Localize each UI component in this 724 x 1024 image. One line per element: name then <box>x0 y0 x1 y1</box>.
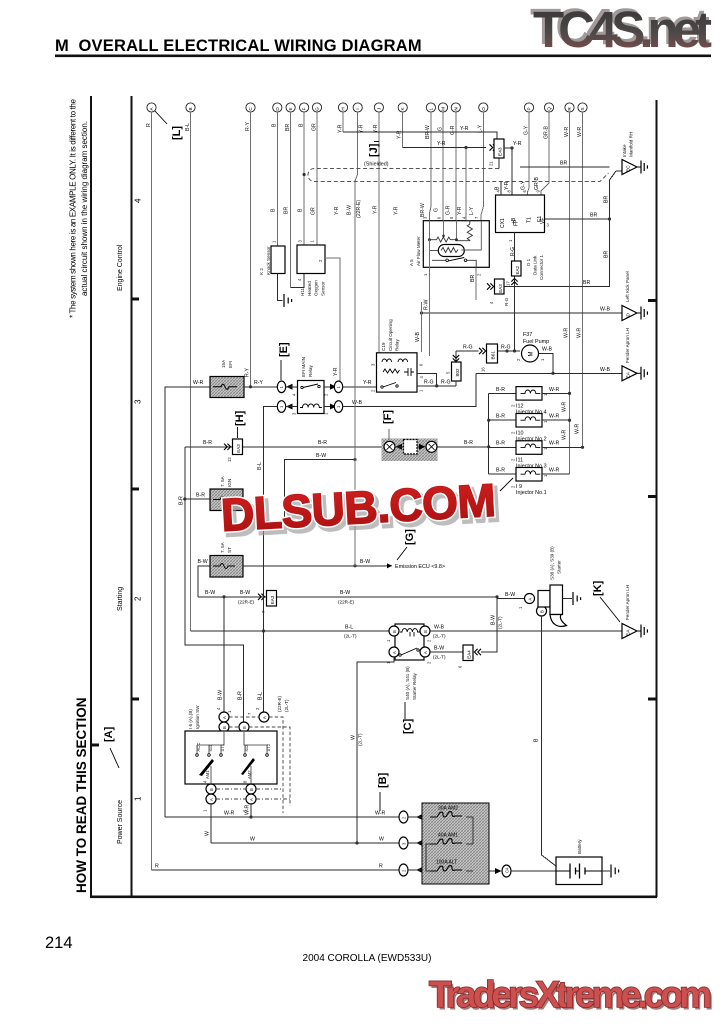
svg-text:Y-R: Y-R <box>460 126 469 132</box>
svg-text:W-R: W-R <box>577 327 583 338</box>
svg-text:B-W: B-W <box>505 592 515 598</box>
svg-text:(22R-E): (22R-E) <box>338 599 355 604</box>
svg-text:B-W: B-W <box>316 453 326 459</box>
svg-text:W-R: W-R <box>549 387 560 393</box>
svg-text:EA3: EA3 <box>498 284 503 293</box>
svg-text:W-R: W-R <box>575 423 581 434</box>
svg-text:21: 21 <box>489 161 494 166</box>
svg-text:Starting: Starting <box>117 587 124 611</box>
svg-text:W-R: W-R <box>562 401 568 412</box>
svg-text:E1: E1 <box>537 216 543 222</box>
svg-text:K 2: K 2 <box>259 268 264 275</box>
svg-text:B-R: B-R <box>496 441 505 447</box>
svg-text:(2L-T): (2L-T) <box>433 634 446 639</box>
svg-text:16: 16 <box>481 367 486 372</box>
svg-text:W-B: W-B <box>600 307 611 313</box>
svg-text:B: B <box>272 123 278 127</box>
svg-text:E43: E43 <box>498 147 504 156</box>
svg-text:EA4: EA4 <box>467 650 472 659</box>
svg-text:W-B: W-B <box>352 400 363 406</box>
svg-text:A: A <box>423 651 428 654</box>
svg-text:C4: C4 <box>504 867 509 873</box>
svg-text:G-R: G-R <box>445 205 451 215</box>
svg-text:R-G: R-G <box>463 345 473 351</box>
svg-text:B: B <box>392 630 397 633</box>
svg-text:7. 5A: 7. 5A <box>220 541 225 553</box>
svg-text:1: 1 <box>134 796 143 801</box>
svg-text:(2L-T): (2L-T) <box>498 616 503 629</box>
svg-text:B: B <box>222 726 227 729</box>
svg-text:2: 2 <box>134 596 143 601</box>
svg-text:Engine Control: Engine Control <box>117 244 124 291</box>
svg-text:4: 4 <box>134 198 143 203</box>
svg-text:B: B <box>495 186 501 190</box>
svg-text:B-W: B-W <box>340 590 350 596</box>
svg-text:J: J <box>376 108 381 110</box>
svg-text:A: A <box>209 798 214 801</box>
svg-text:Y-R: Y-R <box>457 206 463 215</box>
svg-text:W-R: W-R <box>549 414 560 420</box>
svg-text:[A]: [A] <box>103 726 115 742</box>
svg-text:R-G: R-G <box>510 247 516 256</box>
svg-text:W-B: W-B <box>600 367 611 373</box>
svg-text:[F]: [F] <box>382 410 394 424</box>
svg-text:B-W: B-W <box>218 690 224 700</box>
svg-text:AM1: AM1 <box>205 770 210 779</box>
svg-text:Data Link: Data Link <box>533 255 538 275</box>
svg-text:B-W: B-W <box>491 615 497 625</box>
svg-text:* The system shown here is an: * The system shown here is an EXAMPLE ON… <box>69 98 78 318</box>
svg-text:BR-W: BR-W <box>420 203 426 217</box>
svg-text:F: F <box>302 107 307 110</box>
svg-text:B: B <box>271 208 277 212</box>
svg-text:[J]: [J] <box>368 143 380 157</box>
svg-text:B-L: B-L <box>258 692 264 700</box>
svg-text:GR: GR <box>311 123 317 131</box>
svg-text:Y-R: Y-R <box>333 367 339 376</box>
svg-text:17: 17 <box>506 281 511 286</box>
svg-text:R-G: R-G <box>424 379 434 385</box>
svg-text:B-W: B-W <box>360 559 370 565</box>
svg-text:W-R: W-R <box>193 380 204 386</box>
svg-text:GR-B: GR-B <box>543 125 549 139</box>
svg-text:B-L: B-L <box>185 123 191 131</box>
svg-text:W: W <box>205 831 211 836</box>
svg-text:Q: Q <box>547 107 552 111</box>
svg-text:S38 (A), S39 (B): S38 (A), S39 (B) <box>550 546 555 580</box>
svg-text:H11: H11 <box>300 287 305 296</box>
svg-text:B-R: B-R <box>496 414 505 420</box>
svg-text:Power Source: Power Source <box>117 800 124 844</box>
svg-text:EFI MAIN: EFI MAIN <box>301 357 306 377</box>
svg-text:B: B <box>242 726 247 729</box>
svg-text:W-R: W-R <box>549 441 560 447</box>
svg-text:B-W: B-W <box>205 590 215 596</box>
svg-text:Heated: Heated <box>307 281 312 296</box>
svg-text:R-W: R-W <box>424 300 430 310</box>
svg-text:Relay: Relay <box>308 365 313 377</box>
svg-text:Fender Apron LH: Fender Apron LH <box>625 328 630 363</box>
svg-text:[E]: [E] <box>278 342 290 357</box>
svg-text:Ignition SW: Ignition SW <box>195 705 200 729</box>
svg-text:EA3: EA3 <box>236 444 241 453</box>
svg-text:[H]: [H] <box>234 410 246 426</box>
svg-text:R-Y: R-Y <box>254 380 263 386</box>
svg-text:Y-R: Y-R <box>337 124 343 133</box>
svg-text:E: E <box>288 107 293 110</box>
svg-text:R: R <box>379 863 383 869</box>
svg-text:W: W <box>379 836 384 842</box>
svg-text:P: P <box>527 107 532 110</box>
svg-text:Y-R: Y-R <box>394 206 400 215</box>
svg-text:Y-R: Y-R <box>513 141 522 147</box>
svg-text:EC: EC <box>626 165 632 172</box>
svg-text:B: B <box>534 738 540 742</box>
svg-text:IGN: IGN <box>227 479 232 487</box>
svg-text:CX1: CX1 <box>500 218 506 228</box>
svg-text:(2L-T): (2L-T) <box>284 699 289 712</box>
svg-text:40A AM1: 40A AM1 <box>438 833 458 839</box>
svg-text:EA3: EA3 <box>270 595 275 604</box>
svg-text:EA: EA <box>626 371 632 378</box>
svg-text:TC4S.net: TC4S.net <box>533 1 712 58</box>
svg-text:Y-R: Y-R <box>363 380 372 386</box>
svg-text:W: W <box>250 836 255 842</box>
svg-text:B: B <box>249 788 254 791</box>
svg-text:B: B <box>423 630 428 633</box>
svg-text:G: G <box>437 127 443 131</box>
svg-text:Starter: Starter <box>557 560 562 574</box>
svg-text:M: M <box>529 352 535 357</box>
svg-text:R-Y: R-Y <box>245 122 251 131</box>
svg-text:B: B <box>209 788 214 791</box>
svg-text:Emission ECU <9.8>: Emission ECU <9.8> <box>395 564 445 570</box>
svg-text:F37: F37 <box>523 332 532 338</box>
svg-text:W-R: W-R <box>549 468 560 474</box>
svg-text:Y-R: Y-R <box>334 206 340 215</box>
svg-text:(22R-E): (22R-E) <box>238 599 255 604</box>
svg-text:BR: BR <box>284 207 290 214</box>
svg-text:Relay: Relay <box>395 339 400 351</box>
svg-text:G: G <box>315 107 320 111</box>
svg-text:Fuel Pump: Fuel Pump <box>523 339 549 345</box>
svg-text:TradersXtreme.com: TradersXtreme.com <box>429 974 712 1015</box>
svg-text:R-G: R-G <box>504 297 509 306</box>
svg-text:BR: BR <box>560 161 567 167</box>
svg-text:W-B: W-B <box>415 331 421 342</box>
svg-text:GR: GR <box>311 207 317 215</box>
svg-text:(2L-T): (2L-T) <box>344 634 357 639</box>
svg-text:BR: BR <box>604 251 610 258</box>
svg-text:N: N <box>453 107 458 110</box>
svg-text:R: R <box>146 123 152 127</box>
svg-text:15A: 15A <box>221 359 226 368</box>
svg-text:W-R: W-R <box>245 804 251 815</box>
svg-text:B-W: B-W <box>198 559 208 565</box>
svg-text:W-R: W-R <box>577 126 583 137</box>
svg-text:2004 COROLLA (EWD533U): 2004 COROLLA (EWD533U) <box>303 953 432 964</box>
svg-text:Y-R: Y-R <box>373 205 379 214</box>
svg-text:EFI: EFI <box>228 361 233 368</box>
svg-text:HOW TO READ THIS SECTION: HOW TO READ THIS SECTION <box>74 697 89 893</box>
svg-text:BR: BR <box>590 213 597 219</box>
svg-text:W-R: W-R <box>375 810 386 816</box>
svg-text:H: H <box>341 107 346 110</box>
svg-text:B-R: B-R <box>464 440 473 446</box>
svg-text:A: A <box>392 651 397 654</box>
svg-text:Circuit Opening: Circuit Opening <box>388 319 393 351</box>
svg-text:B-L: B-L <box>257 462 263 470</box>
svg-text:S40 (A), S41 (B): S40 (A), S41 (B) <box>405 666 410 700</box>
svg-text:B: B <box>298 123 304 127</box>
svg-text:W-R: W-R <box>562 429 568 440</box>
svg-text:B-R: B-R <box>496 387 505 393</box>
svg-text:B-R: B-R <box>238 691 244 700</box>
svg-text:O: O <box>481 107 486 111</box>
svg-text:BR: BR <box>470 275 476 282</box>
svg-text:B-R: B-R <box>196 492 205 498</box>
svg-text:BR: BR <box>285 124 291 131</box>
svg-text:(2L-T): (2L-T) <box>433 655 446 660</box>
svg-text:Connector 1: Connector 1 <box>539 255 544 280</box>
svg-text:G-Y: G-Y <box>523 125 529 135</box>
svg-text:A: A <box>222 716 227 719</box>
svg-text:B02: B02 <box>455 368 460 377</box>
svg-text:B-L: B-L <box>345 624 353 630</box>
svg-text:EA2: EA2 <box>515 265 520 274</box>
svg-text:G-Y: G-Y <box>521 180 527 190</box>
svg-text:W-R: W-R <box>564 126 570 137</box>
svg-text:G: G <box>434 208 440 212</box>
svg-text:A 5: A 5 <box>409 259 414 266</box>
svg-text:T1: T1 <box>527 217 533 223</box>
svg-text:B-R: B-R <box>179 496 185 505</box>
svg-text:G-R: G-R <box>450 125 456 135</box>
svg-text:D 1: D 1 <box>526 258 531 266</box>
svg-text:B: B <box>297 208 303 212</box>
svg-text:Knock Sensor: Knock Sensor <box>266 246 271 275</box>
svg-text:W-R: W-R <box>564 327 570 338</box>
svg-text:L: L <box>428 107 433 110</box>
svg-text:R-G: R-G <box>441 379 451 385</box>
svg-text:(Shielded): (Shielded) <box>364 162 389 168</box>
svg-text:Intake: Intake <box>622 144 627 157</box>
svg-text:R-Y: R-Y <box>245 368 251 377</box>
svg-text:Sensor: Sensor <box>320 281 325 296</box>
svg-text:I: I <box>355 108 360 109</box>
svg-text:Air Flow Meter: Air Flow Meter <box>416 236 421 266</box>
svg-text:M OVERALL ELECTRICAL WIRING D: M OVERALL ELECTRICAL WIRING DIAGRAM <box>55 37 422 55</box>
svg-text:Battery: Battery <box>577 839 582 854</box>
svg-text:GR-B: GR-B <box>534 176 540 190</box>
svg-text:I 6 (A),(B): I 6 (A),(B) <box>188 709 193 729</box>
svg-text:B-R: B-R <box>318 440 327 446</box>
svg-text:12: 12 <box>227 457 232 462</box>
svg-text:B61: B61 <box>491 351 497 360</box>
svg-text:7. 5A: 7. 5A <box>220 475 225 487</box>
svg-text:W-B: W-B <box>542 347 553 353</box>
svg-text:B-W: B-W <box>347 205 353 215</box>
svg-text:Y-R: Y-R <box>504 181 510 190</box>
svg-text:A: A <box>527 598 532 601</box>
svg-text:Y-R: Y-R <box>437 141 446 147</box>
svg-text:Manifold RH: Manifold RH <box>629 132 634 157</box>
svg-text:A: A <box>249 798 254 801</box>
svg-text:B-W: B-W <box>240 590 250 596</box>
svg-text:BR: BR <box>583 280 590 286</box>
svg-text:3: 3 <box>134 399 143 404</box>
svg-text:[B]: [B] <box>377 772 389 788</box>
svg-text:FP: FP <box>514 219 520 226</box>
svg-text:30A AM2: 30A AM2 <box>438 806 458 812</box>
svg-text:Left Kick Panel: Left Kick Panel <box>625 271 630 302</box>
svg-text:C19: C19 <box>381 342 386 351</box>
svg-text:(2L-T): (2L-T) <box>358 733 363 746</box>
svg-text:S: S <box>580 107 585 110</box>
svg-text:[L]: [L] <box>171 126 183 140</box>
svg-text:M: M <box>441 107 446 111</box>
svg-text:W-R: W-R <box>224 810 235 816</box>
svg-text:W: W <box>351 735 357 740</box>
svg-text:ID: ID <box>626 313 632 318</box>
svg-text:Fender Apron LH: Fender Apron LH <box>625 585 630 620</box>
svg-text:Injector No.1: Injector No.1 <box>516 490 547 496</box>
svg-text:B-W: B-W <box>434 645 444 651</box>
svg-text:[C]: [C] <box>402 718 414 734</box>
svg-text:B: B <box>539 610 544 613</box>
svg-text:214: 214 <box>45 934 73 952</box>
svg-text:100A ALT: 100A ALT <box>436 860 457 866</box>
svg-text:[K]: [K] <box>592 580 604 596</box>
svg-text:ST: ST <box>227 547 232 553</box>
svg-text:W-B: W-B <box>434 624 445 630</box>
svg-text:(22R-E): (22R-E) <box>356 200 362 218</box>
svg-text:B-R: B-R <box>496 468 505 474</box>
svg-text:Oxygen: Oxygen <box>314 280 319 296</box>
svg-text:EA: EA <box>626 629 632 636</box>
svg-text:B-R: B-R <box>203 440 212 446</box>
svg-text:A: A <box>262 716 267 719</box>
svg-text:(22R-E): (22R-E) <box>277 695 282 712</box>
svg-text:Starter Relay: Starter Relay <box>412 672 417 700</box>
svg-text:R-G: R-G <box>501 345 511 351</box>
svg-text:BR: BR <box>604 196 610 203</box>
svg-text:B: B <box>188 107 193 110</box>
svg-text:R: R <box>155 863 159 869</box>
svg-text:actual circuit shown in the wi: actual circuit shown in the wiring diagr… <box>80 121 89 296</box>
svg-text:L-Y: L-Y <box>469 206 475 215</box>
